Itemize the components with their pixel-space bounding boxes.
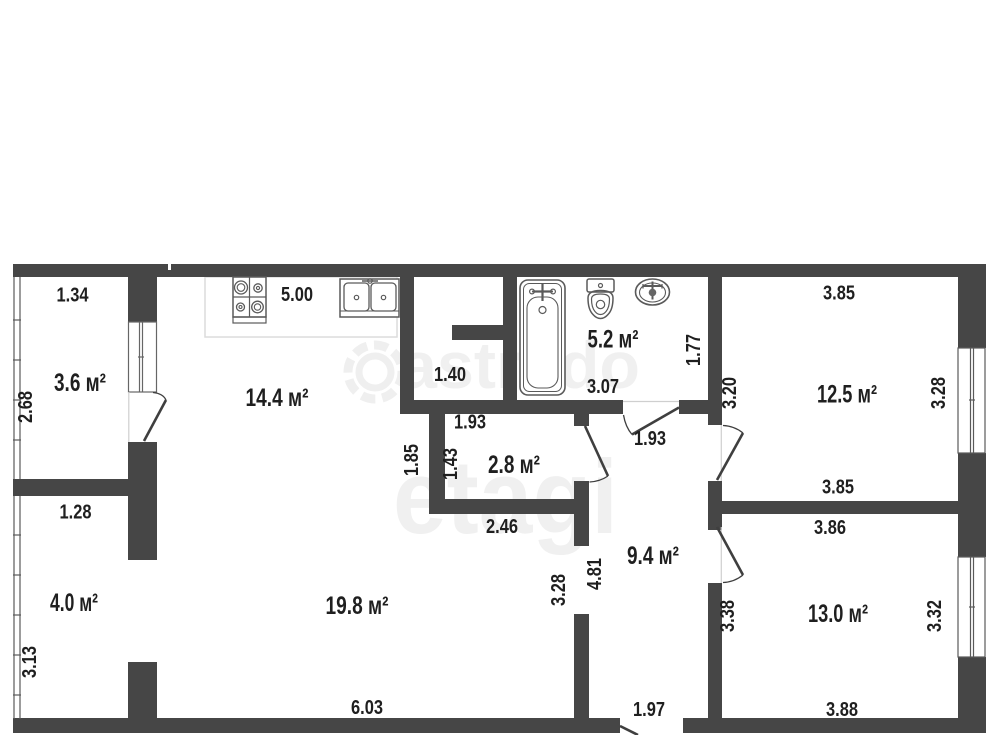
svg-text:2.8 м²: 2.8 м² <box>488 451 540 479</box>
svg-text:3.20: 3.20 <box>719 377 741 409</box>
svg-text:3.88: 3.88 <box>826 699 858 721</box>
svg-text:3.13: 3.13 <box>19 646 41 678</box>
svg-text:3.85: 3.85 <box>823 283 855 305</box>
svg-text:1.93: 1.93 <box>634 428 666 450</box>
svg-text:19.8 м²: 19.8 м² <box>326 592 389 620</box>
svg-text:3.6 м²: 3.6 м² <box>54 369 106 397</box>
svg-text:1.93: 1.93 <box>454 412 486 434</box>
svg-text:1.77: 1.77 <box>683 334 705 366</box>
svg-text:3.28: 3.28 <box>548 574 570 606</box>
svg-text:3.28: 3.28 <box>928 377 950 409</box>
svg-text:3.32: 3.32 <box>924 600 946 632</box>
svg-text:13.0 м²: 13.0 м² <box>808 600 868 628</box>
svg-text:6.03: 6.03 <box>351 697 383 719</box>
svg-text:5.2 м²: 5.2 м² <box>588 326 639 354</box>
svg-text:14.4 м²: 14.4 м² <box>246 384 309 412</box>
svg-text:4.81: 4.81 <box>584 558 606 590</box>
svg-text:3.86: 3.86 <box>814 517 846 539</box>
svg-text:12.5 м²: 12.5 м² <box>817 381 877 409</box>
svg-text:1.85: 1.85 <box>401 444 423 476</box>
svg-text:1.34: 1.34 <box>57 285 90 307</box>
svg-text:2.68: 2.68 <box>15 391 37 423</box>
svg-text:3.38: 3.38 <box>717 600 739 632</box>
svg-text:1.40: 1.40 <box>434 364 466 386</box>
svg-text:1.28: 1.28 <box>60 502 92 524</box>
svg-text:3.07: 3.07 <box>587 376 619 398</box>
svg-text:1.43: 1.43 <box>440 448 462 480</box>
svg-text:1.97: 1.97 <box>633 699 665 721</box>
svg-text:3.85: 3.85 <box>822 477 854 499</box>
svg-text:4.0 м²: 4.0 м² <box>50 589 98 617</box>
svg-text:5.00: 5.00 <box>281 284 313 306</box>
svg-text:9.4 м²: 9.4 м² <box>627 542 679 570</box>
svg-text:2.46: 2.46 <box>486 516 518 538</box>
